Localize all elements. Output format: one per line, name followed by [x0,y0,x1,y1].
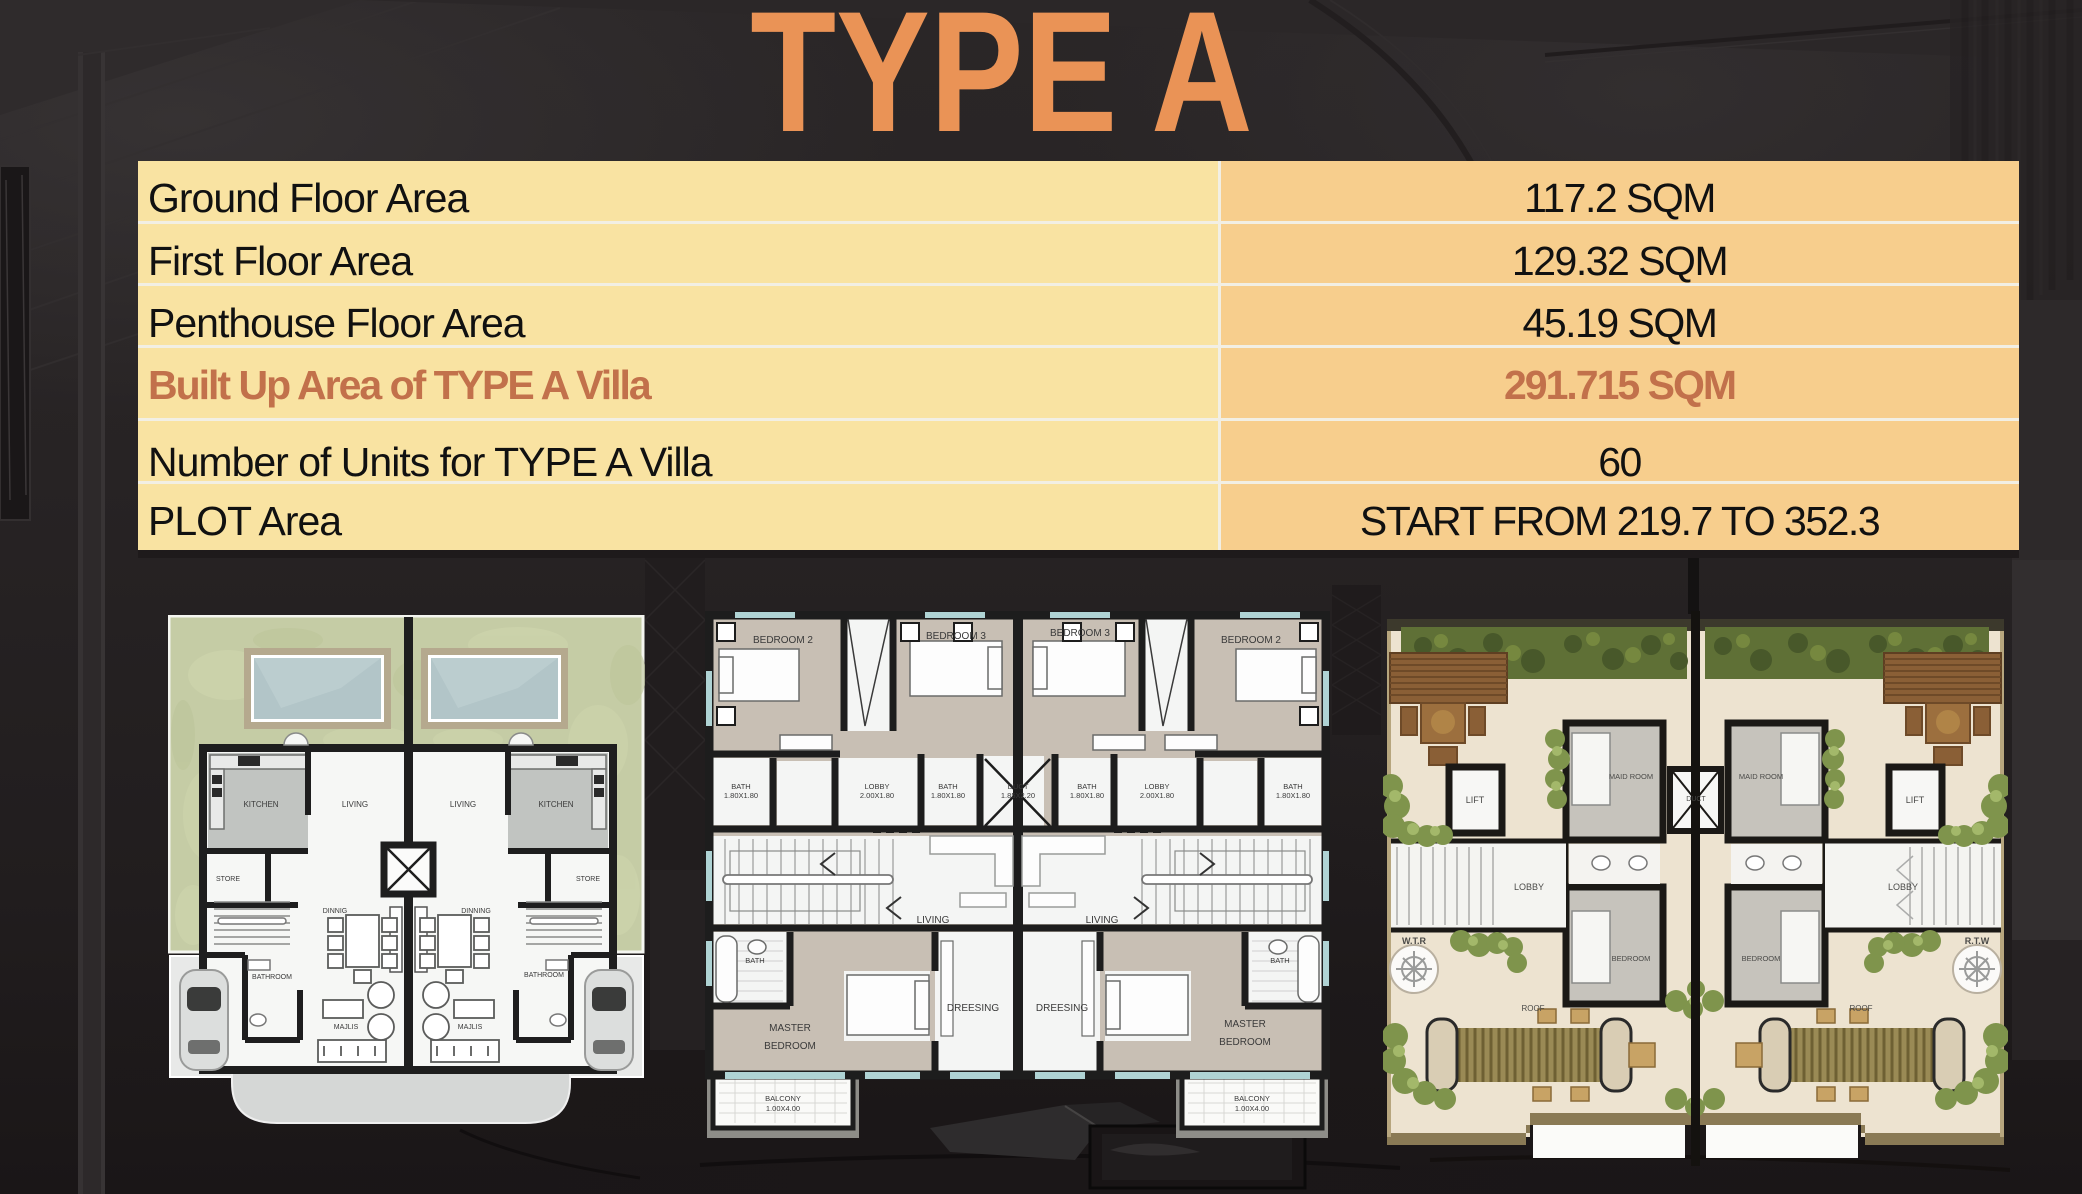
svg-text:2.00X1.80: 2.00X1.80 [860,791,894,800]
svg-text:ROOF: ROOF [1849,1004,1872,1013]
svg-text:BEDROOM 3: BEDROOM 3 [1050,628,1110,639]
svg-text:MAID ROOM: MAID ROOM [1609,772,1653,781]
svg-text:LOBBY: LOBBY [1514,882,1544,892]
svg-text:BATH: BATH [745,956,764,965]
svg-text:ROOF: ROOF [1521,1004,1544,1013]
svg-text:LIVING: LIVING [917,915,950,926]
svg-text:LOBBY: LOBBY [864,782,889,791]
svg-text:STORE: STORE [576,876,600,883]
svg-text:BATH: BATH [1283,782,1302,791]
svg-text:DREESING: DREESING [1036,1003,1088,1014]
svg-text:1.85X2.20: 1.85X2.20 [1001,791,1035,800]
svg-text:LIVING: LIVING [1086,915,1119,926]
svg-text:BEDROOM: BEDROOM [764,1041,816,1052]
svg-text:BATH: BATH [1270,956,1289,965]
svg-text:DREESING: DREESING [947,1003,999,1014]
svg-text:1.80X1.80: 1.80X1.80 [724,791,758,800]
svg-text:1.80X1.80: 1.80X1.80 [931,791,965,800]
svg-text:1.00X4.00: 1.00X4.00 [1235,1104,1269,1113]
svg-text:DUCT: DUCT [1008,782,1029,791]
svg-text:KITCHEN: KITCHEN [243,800,278,809]
svg-text:BEDROOM 2: BEDROOM 2 [753,635,813,646]
svg-text:MAJLIS: MAJLIS [458,1024,483,1031]
svg-text:1.00X4.00: 1.00X4.00 [766,1104,800,1113]
svg-text:R.T.W: R.T.W [1965,936,1990,946]
svg-text:LIVING: LIVING [342,800,368,809]
svg-text:BATHROOM: BATHROOM [524,972,564,979]
svg-text:BEDROOM: BEDROOM [1219,1037,1271,1048]
svg-text:MASTER: MASTER [1224,1019,1266,1030]
svg-text:BATH: BATH [938,782,957,791]
svg-text:BATHROOM: BATHROOM [252,974,292,981]
svg-text:1.80X1.80: 1.80X1.80 [1276,791,1310,800]
svg-text:KITCHEN: KITCHEN [538,800,573,809]
svg-text:BALCONY: BALCONY [765,1094,801,1103]
svg-text:1.80X1.80: 1.80X1.80 [1070,791,1104,800]
svg-text:STORE: STORE [216,876,240,883]
svg-text:LIFT: LIFT [1466,795,1485,805]
svg-text:BEDROOM 3: BEDROOM 3 [926,631,986,642]
svg-text:BALCONY: BALCONY [1234,1094,1270,1103]
svg-text:DINNIG: DINNIG [323,908,348,915]
svg-text:DUCT: DUCT [1686,796,1706,803]
svg-text:BEDROOM 2: BEDROOM 2 [1221,635,1281,646]
svg-text:BATH: BATH [731,782,750,791]
svg-text:BEDROOM: BEDROOM [1742,954,1781,963]
svg-text:BATH: BATH [1077,782,1096,791]
svg-text:LOBBY: LOBBY [1144,782,1169,791]
svg-text:W.T.R: W.T.R [1402,936,1426,946]
svg-text:LOBBY: LOBBY [1888,882,1918,892]
svg-text:MAJLIS: MAJLIS [334,1024,359,1031]
svg-text:DINNING: DINNING [461,908,491,915]
svg-text:MASTER: MASTER [769,1023,811,1034]
svg-text:MAID ROOM: MAID ROOM [1739,772,1783,781]
svg-text:LIFT: LIFT [1906,795,1925,805]
svg-text:LIVING: LIVING [450,800,476,809]
svg-text:2.00X1.80: 2.00X1.80 [1140,791,1174,800]
svg-text:BEDROOM: BEDROOM [1612,954,1651,963]
